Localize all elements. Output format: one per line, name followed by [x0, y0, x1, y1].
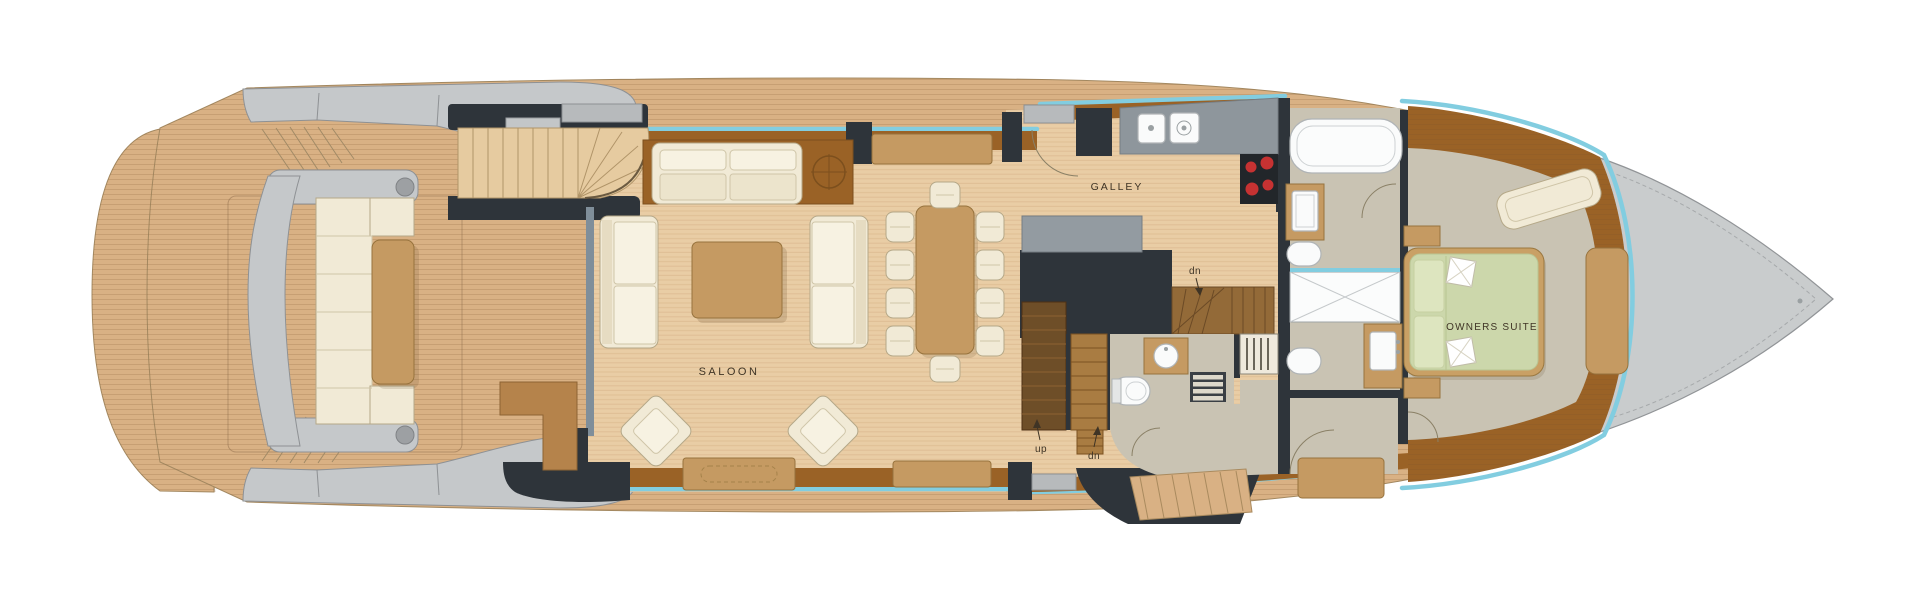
companionway-steps: [1190, 372, 1226, 402]
toilet-forward-icon: [1287, 242, 1321, 266]
spiral-staircase: [458, 128, 649, 198]
stairs-down-label: dn: [1088, 451, 1100, 462]
louvered-closet: [1240, 334, 1278, 374]
side-deck-stairs: [1130, 469, 1252, 520]
sideboard-aft: [683, 458, 795, 490]
saloon-sofa-starboard: [810, 216, 868, 348]
dining-table: [916, 206, 978, 358]
galley-label: GALLEY: [1091, 181, 1144, 193]
toilet-aft-icon: [1287, 348, 1321, 374]
aft-deck-table: [372, 240, 419, 389]
staircase-up: [1022, 302, 1066, 430]
saloon-label: SALOON: [699, 366, 760, 378]
galley-stairs-down-label: dn: [1189, 266, 1201, 277]
owners-bathroom: [1286, 108, 1402, 390]
cooktop-icon: [1240, 154, 1278, 204]
coffee-table: [692, 242, 787, 323]
shower-icon: [1290, 268, 1400, 322]
wardrobe-cabinet: [1586, 248, 1628, 374]
sideboard-dining-aft: [893, 461, 991, 487]
round-sink-icon: [1144, 338, 1188, 374]
owners-bed: [1404, 248, 1546, 380]
bow-fitting: [1798, 299, 1803, 304]
deck-plan-svg: SALOON GALLEY OWNERS SUITE up dn dn: [0, 0, 1920, 590]
bathtub-icon: [1290, 119, 1402, 173]
sliding-door-aft: [562, 104, 642, 122]
toilet-icon: [1112, 377, 1150, 405]
sliding-door-galley: [1024, 105, 1074, 123]
yacht-main-deck-plan: SALOON GALLEY OWNERS SUITE up dn dn: [0, 0, 1920, 590]
vanity-sink-aft-icon: [1364, 324, 1402, 388]
sliding-door-bottom: [1032, 474, 1076, 490]
nightstand-forward: [1404, 226, 1440, 246]
saloon-sofa-port: [600, 216, 658, 348]
saloon-sofa-forward: [652, 143, 802, 204]
owners-suite-label: OWNERS SUITE: [1446, 322, 1538, 333]
sideboard-dining-forward: [872, 134, 992, 164]
galley-island: [1022, 216, 1142, 252]
stairs-up-label: up: [1035, 444, 1047, 455]
entry-bench: [1298, 458, 1384, 498]
vanity-sink-forward-icon: [1286, 184, 1324, 240]
nightstand-aft: [1404, 378, 1440, 398]
crew-staircase-down: [1172, 287, 1274, 334]
